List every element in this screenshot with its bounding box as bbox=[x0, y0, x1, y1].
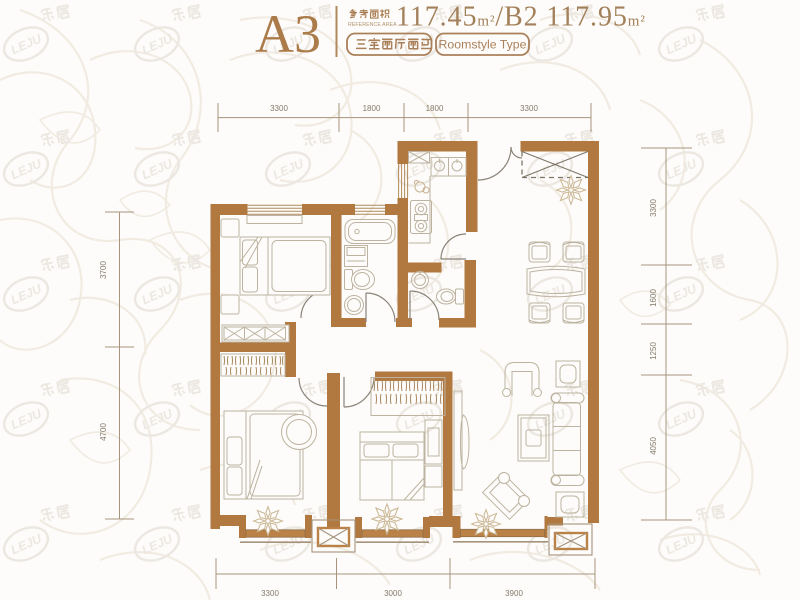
svg-text:3300: 3300 bbox=[649, 199, 658, 217]
svg-text:3900: 3900 bbox=[505, 589, 523, 598]
svg-text:REFERENCE AREA: REFERENCE AREA bbox=[348, 22, 397, 28]
svg-text:4050: 4050 bbox=[649, 437, 658, 455]
svg-text:3700: 3700 bbox=[99, 261, 108, 279]
svg-text:1800: 1800 bbox=[363, 104, 381, 113]
svg-text:3300: 3300 bbox=[270, 104, 288, 113]
svg-text:1250: 1250 bbox=[649, 342, 658, 360]
svg-text:A3: A3 bbox=[255, 4, 321, 64]
svg-text:3300: 3300 bbox=[261, 589, 279, 598]
svg-text:117.45m²/B2 117.95m²: 117.45m²/B2 117.95m² bbox=[396, 2, 646, 33]
svg-text:1600: 1600 bbox=[649, 289, 658, 307]
svg-text:Roomstyle Type: Roomstyle Type bbox=[439, 38, 527, 52]
svg-text:3000: 3000 bbox=[384, 589, 402, 598]
svg-text:4700: 4700 bbox=[99, 423, 108, 441]
svg-text:1800: 1800 bbox=[426, 104, 444, 113]
svg-text:3300: 3300 bbox=[520, 104, 538, 113]
